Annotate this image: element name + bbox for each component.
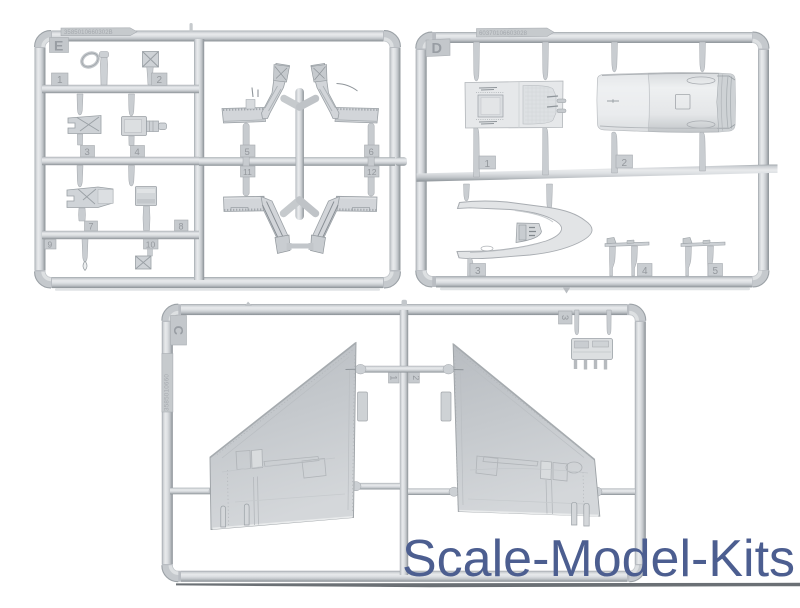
svg-text:11: 11 <box>243 167 252 177</box>
svg-text:1: 1 <box>57 75 63 86</box>
svg-text:10: 10 <box>146 240 156 250</box>
svg-text:8: 8 <box>179 222 184 232</box>
svg-text:1: 1 <box>485 159 491 170</box>
svg-text:1: 1 <box>389 375 399 380</box>
svg-text:2: 2 <box>622 158 628 169</box>
svg-text:Scale-Model-Kits: Scale-Model-Kits <box>402 530 795 588</box>
svg-text:3: 3 <box>85 147 90 158</box>
svg-text:4: 4 <box>135 147 140 158</box>
svg-text:9: 9 <box>48 240 53 250</box>
svg-text:3585010660302B: 3585010660302B <box>64 30 113 36</box>
svg-text:6: 6 <box>369 147 374 158</box>
svg-text:5: 5 <box>713 266 719 277</box>
svg-text:5: 5 <box>245 147 250 158</box>
svg-text:60370106603028: 60370106603028 <box>479 31 528 37</box>
svg-text:3: 3 <box>559 315 570 320</box>
svg-text:3585010660: 3585010660 <box>164 374 171 411</box>
svg-text:7: 7 <box>89 222 94 232</box>
svg-text:2: 2 <box>411 375 421 380</box>
svg-text:3: 3 <box>475 266 481 277</box>
svg-text:12: 12 <box>367 167 377 177</box>
svg-text:D: D <box>432 41 442 57</box>
svg-text:C: C <box>171 326 186 336</box>
svg-text:E: E <box>54 38 63 54</box>
svg-text:4: 4 <box>642 266 648 277</box>
svg-text:2: 2 <box>157 75 163 86</box>
